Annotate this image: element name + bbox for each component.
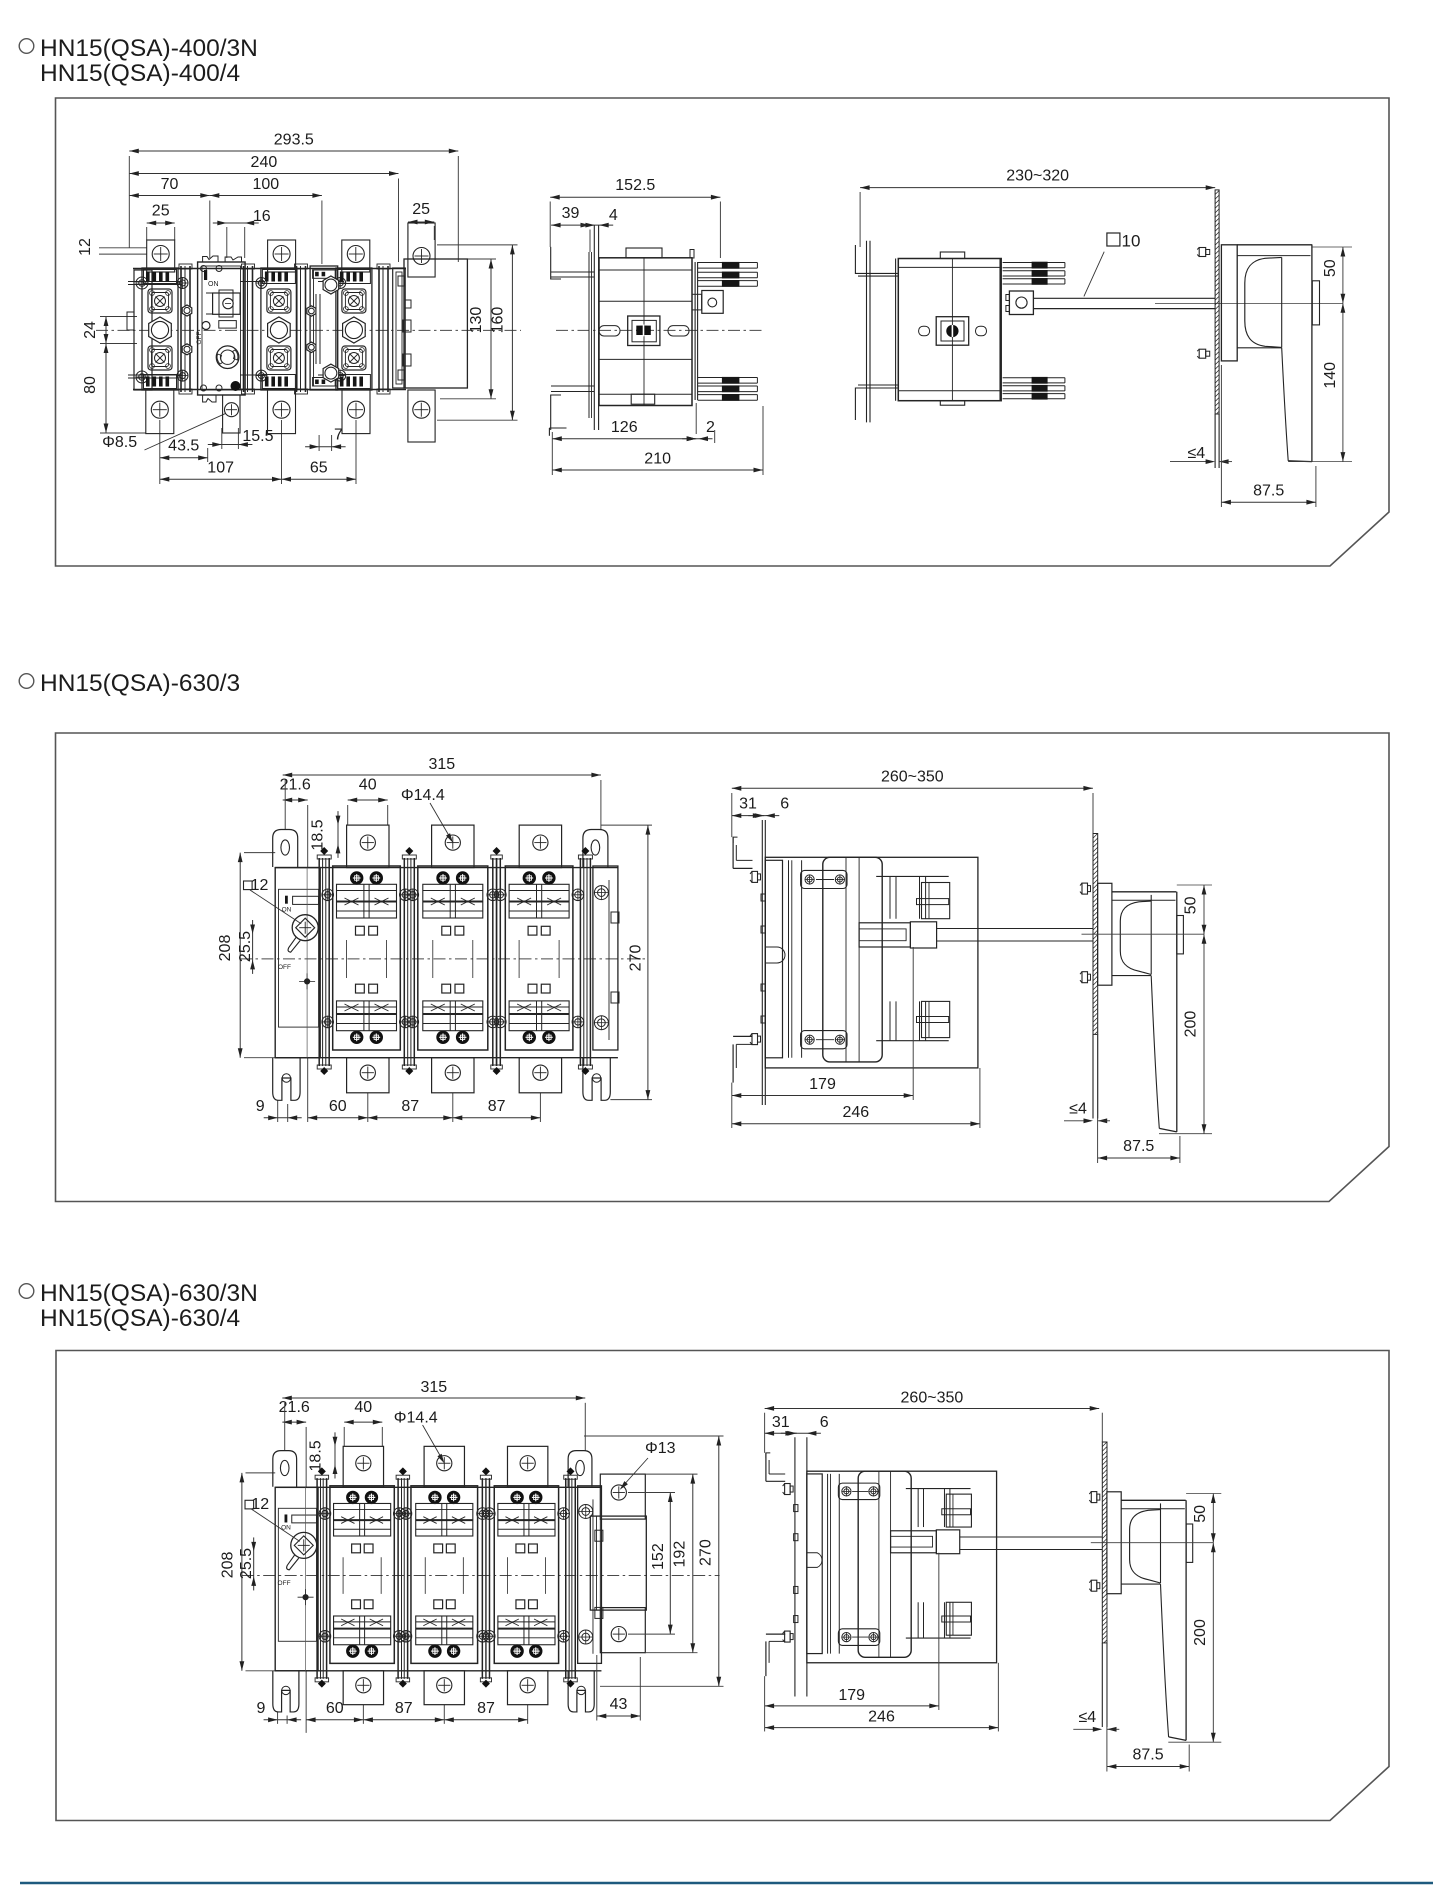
- svg-text:152.5: 152.5: [615, 177, 655, 194]
- svg-text:OFF: OFF: [278, 964, 291, 971]
- svg-text:ON: ON: [208, 281, 219, 288]
- svg-text:246: 246: [868, 1708, 895, 1725]
- svg-text:≤4: ≤4: [1078, 1709, 1096, 1726]
- svg-text:152: 152: [650, 1543, 667, 1570]
- svg-text:≤4: ≤4: [1069, 1101, 1087, 1118]
- svg-text:25.5: 25.5: [238, 1548, 255, 1579]
- svg-text:25.5: 25.5: [237, 931, 254, 962]
- svg-text:ON: ON: [282, 907, 292, 914]
- svg-text:65: 65: [310, 460, 328, 477]
- svg-text:87.5: 87.5: [1123, 1138, 1154, 1155]
- svg-text:6: 6: [780, 796, 789, 813]
- svg-text:31: 31: [772, 1414, 790, 1431]
- svg-text:270: 270: [697, 1539, 714, 1566]
- svg-text:246: 246: [842, 1104, 869, 1121]
- svg-text:100: 100: [252, 176, 279, 193]
- svg-text:315: 315: [420, 1379, 447, 1396]
- svg-text:HN15(QSA)-630/4: HN15(QSA)-630/4: [40, 1305, 240, 1332]
- svg-text:43.5: 43.5: [168, 438, 199, 455]
- svg-text:40: 40: [359, 777, 377, 794]
- svg-text:260~350: 260~350: [901, 1389, 964, 1406]
- svg-text:Φ13: Φ13: [645, 1440, 676, 1457]
- svg-text:130: 130: [468, 307, 485, 334]
- svg-text:230~320: 230~320: [1006, 168, 1069, 185]
- svg-text:ON: ON: [281, 1525, 291, 1532]
- svg-text:107: 107: [207, 460, 234, 477]
- svg-text:Φ14.4: Φ14.4: [401, 787, 445, 804]
- svg-text:200: 200: [1192, 1619, 1209, 1646]
- svg-text:208: 208: [217, 935, 234, 962]
- svg-text:140: 140: [1322, 362, 1339, 389]
- svg-text:50: 50: [1322, 259, 1339, 277]
- svg-text:40: 40: [354, 1399, 372, 1416]
- svg-text:293.5: 293.5: [274, 131, 314, 148]
- svg-text:50: 50: [1192, 1505, 1209, 1523]
- svg-text:12: 12: [251, 877, 269, 894]
- svg-text:12: 12: [77, 238, 94, 256]
- svg-text:87: 87: [488, 1098, 506, 1115]
- svg-text:87: 87: [395, 1700, 413, 1717]
- svg-text:9: 9: [256, 1700, 265, 1717]
- svg-text:HN15(QSA)-400/3N: HN15(QSA)-400/3N: [40, 35, 258, 62]
- svg-text:50: 50: [1183, 896, 1200, 914]
- svg-text:87: 87: [401, 1098, 419, 1115]
- svg-text:≤4: ≤4: [1187, 445, 1205, 462]
- svg-text:18.5: 18.5: [310, 819, 327, 850]
- svg-text:18.5: 18.5: [307, 1440, 324, 1471]
- svg-text:12: 12: [251, 1496, 269, 1513]
- svg-text:315: 315: [428, 756, 455, 773]
- svg-text:21.6: 21.6: [280, 777, 311, 794]
- svg-text:208: 208: [219, 1551, 236, 1578]
- svg-text:4: 4: [609, 207, 618, 224]
- svg-text:HN15(QSA)-630/3: HN15(QSA)-630/3: [40, 670, 240, 697]
- svg-text:43: 43: [610, 1696, 628, 1713]
- svg-text:HN15(QSA)-400/4: HN15(QSA)-400/4: [40, 60, 240, 87]
- svg-text:21.6: 21.6: [279, 1399, 310, 1416]
- svg-text:192: 192: [671, 1541, 688, 1568]
- svg-text:OFF: OFF: [196, 331, 203, 344]
- svg-text:87.5: 87.5: [1132, 1747, 1163, 1764]
- svg-text:179: 179: [809, 1076, 836, 1093]
- svg-text:270: 270: [627, 945, 644, 972]
- svg-text:25: 25: [412, 201, 430, 218]
- svg-text:240: 240: [251, 154, 278, 171]
- svg-text:87: 87: [477, 1700, 495, 1717]
- svg-text:60: 60: [326, 1700, 344, 1717]
- svg-text:31: 31: [739, 796, 757, 813]
- svg-text:6: 6: [820, 1414, 829, 1431]
- svg-text:25: 25: [152, 203, 170, 220]
- svg-text:OFF: OFF: [278, 1580, 291, 1587]
- svg-text:60: 60: [329, 1098, 347, 1115]
- svg-text:39: 39: [562, 205, 580, 222]
- svg-text:9: 9: [256, 1098, 265, 1115]
- svg-text:15.5: 15.5: [242, 428, 273, 445]
- svg-text:179: 179: [838, 1687, 865, 1704]
- svg-text:70: 70: [161, 176, 179, 193]
- svg-text:160: 160: [490, 307, 507, 334]
- svg-text:260~350: 260~350: [881, 769, 944, 786]
- svg-text:80: 80: [82, 376, 99, 394]
- svg-text:16: 16: [253, 208, 271, 225]
- svg-text:Φ8.5: Φ8.5: [102, 434, 137, 451]
- svg-text:24: 24: [82, 321, 99, 339]
- svg-text:2: 2: [706, 419, 715, 436]
- svg-text:10: 10: [1122, 232, 1141, 251]
- svg-text:HN15(QSA)-630/3N: HN15(QSA)-630/3N: [40, 1280, 258, 1307]
- svg-text:200: 200: [1183, 1011, 1200, 1038]
- svg-text:210: 210: [644, 451, 671, 468]
- svg-text:126: 126: [611, 419, 638, 436]
- svg-text:Φ14.4: Φ14.4: [394, 1409, 438, 1426]
- svg-text:87.5: 87.5: [1253, 483, 1284, 500]
